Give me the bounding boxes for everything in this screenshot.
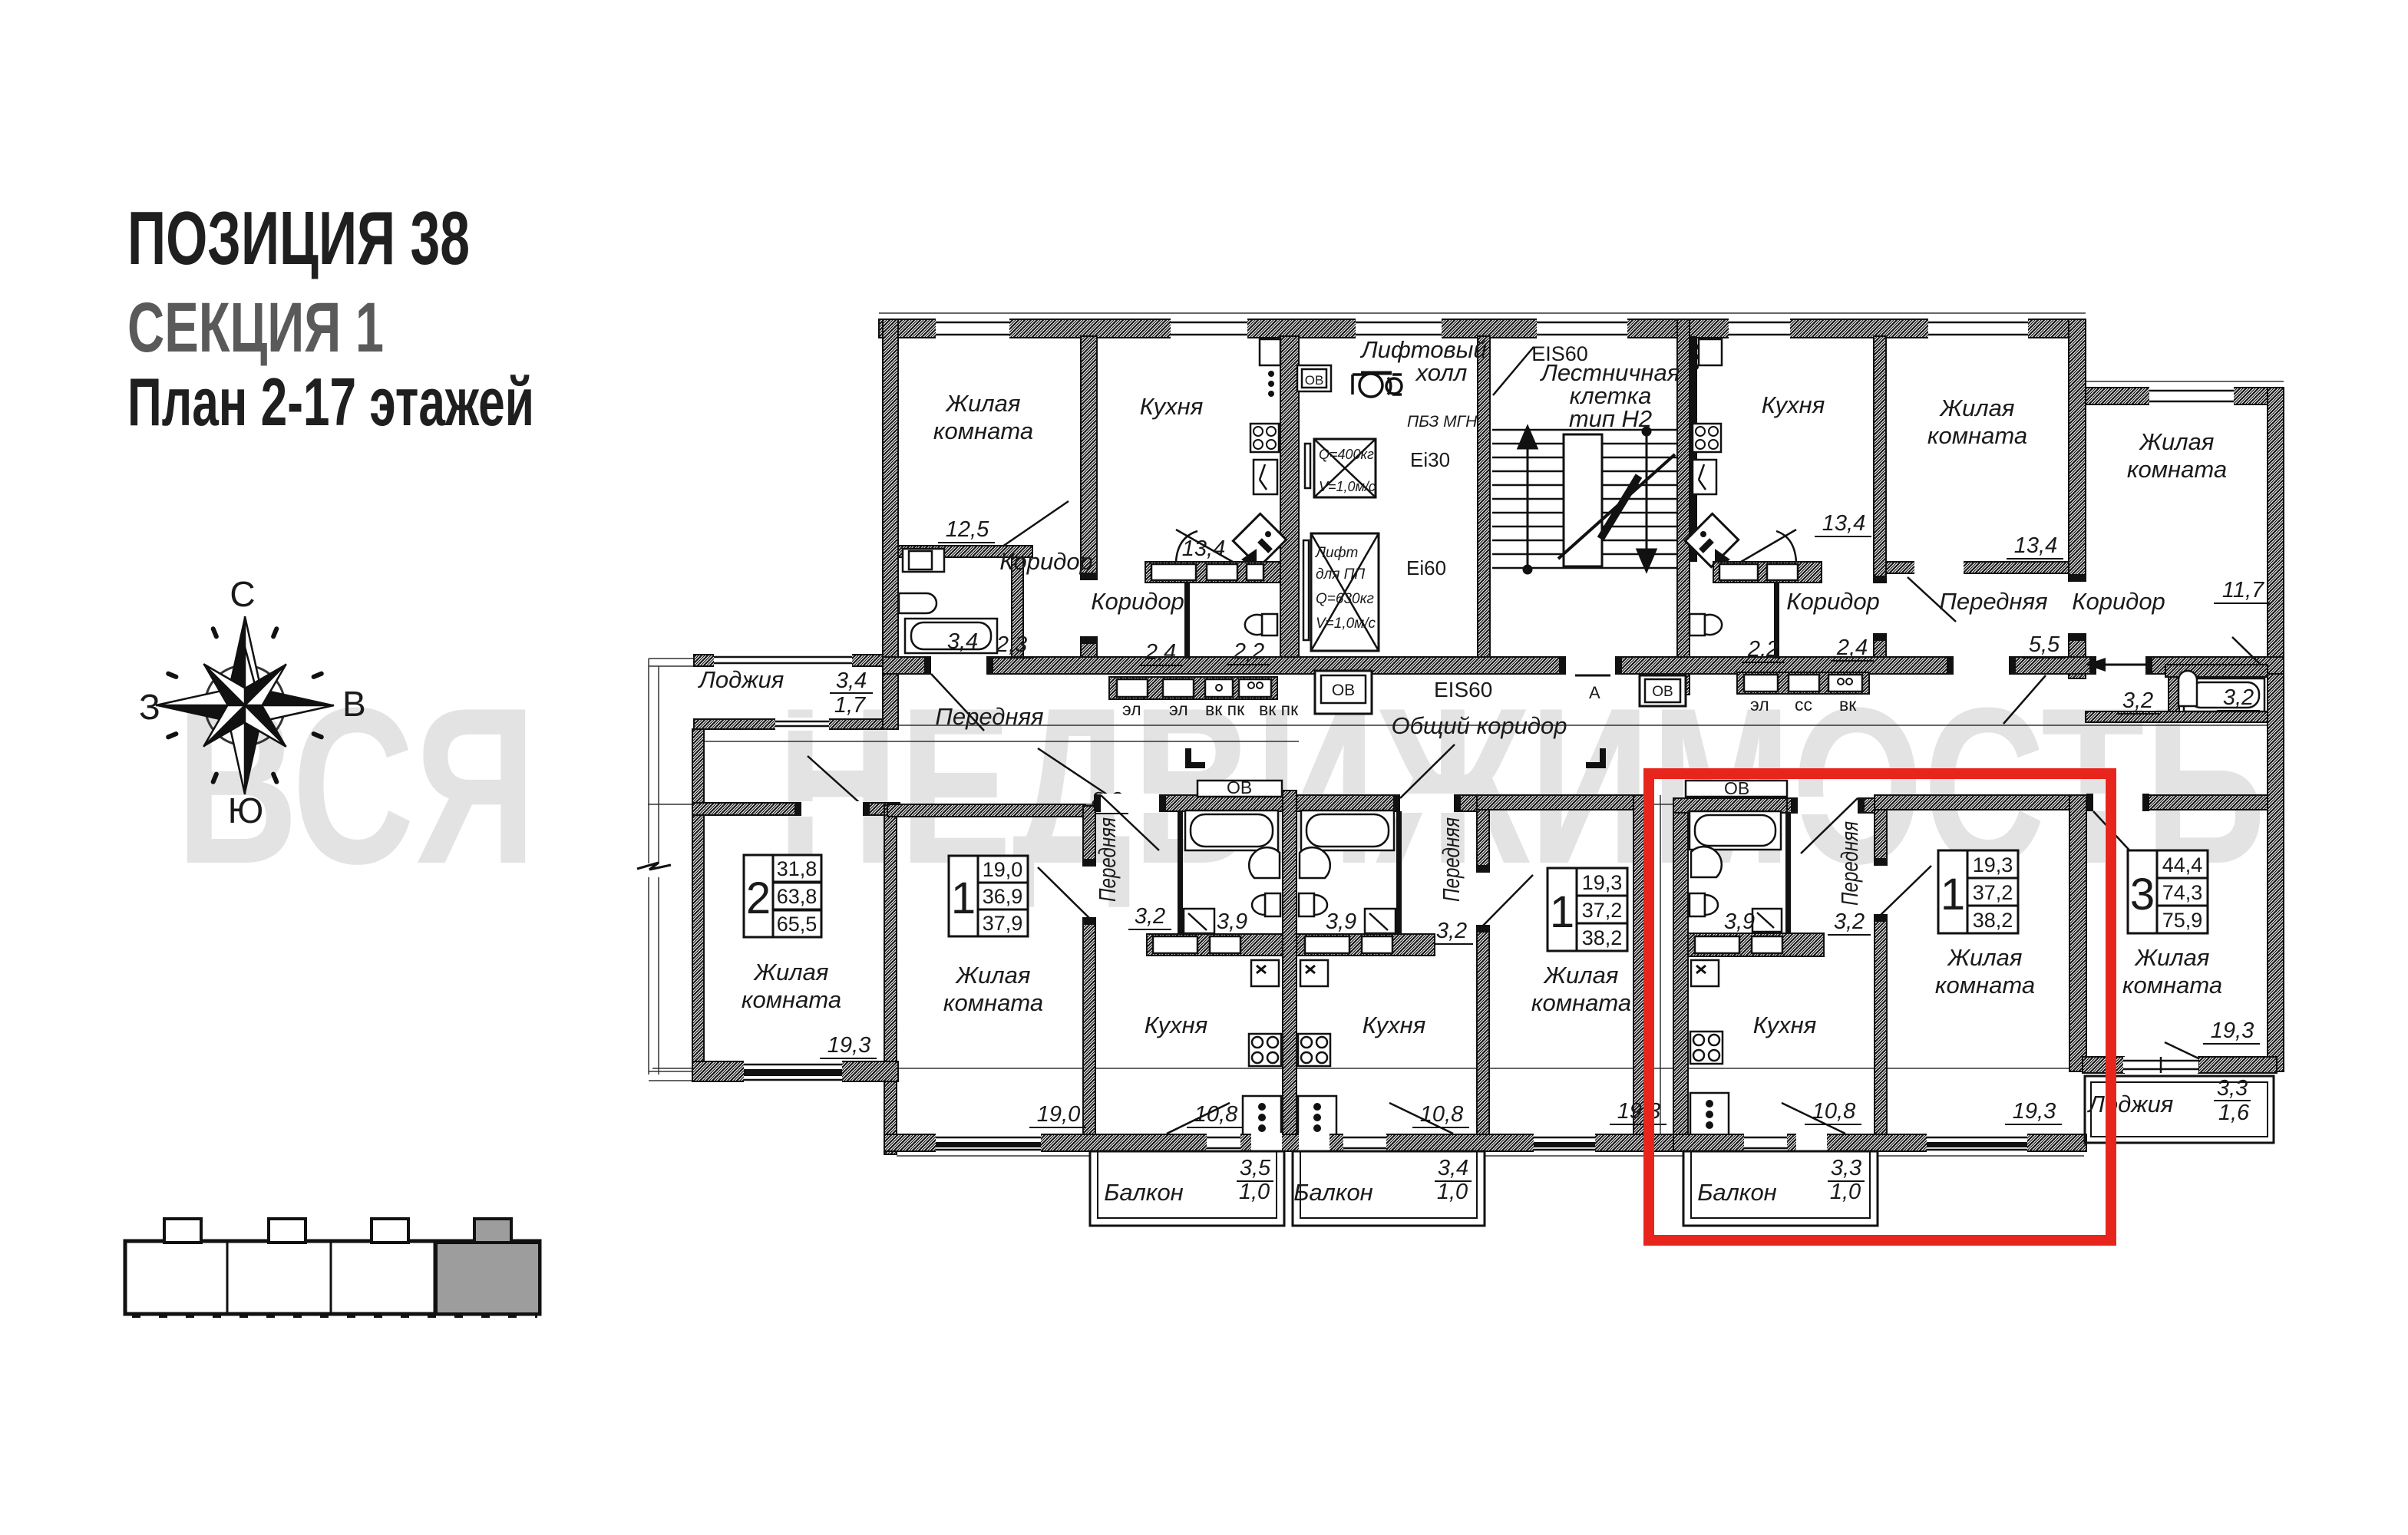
svg-text:Кухня: Кухня — [1140, 393, 1204, 420]
svg-text:Балкон: Балкон — [1104, 1179, 1184, 1206]
svg-text:3,4: 3,4 — [947, 629, 978, 654]
svg-text:тип Н2: тип Н2 — [1569, 405, 1652, 432]
svg-text:13,4: 13,4 — [1182, 536, 1225, 561]
svg-text:Кухня: Кухня — [1753, 1012, 1817, 1038]
svg-text:EIS60: EIS60 — [1434, 678, 1492, 701]
svg-text:Q=400кг: Q=400кг — [1319, 447, 1374, 462]
svg-text:1,0: 1,0 — [1437, 1180, 1468, 1204]
svg-text:Коридор: Коридор — [2072, 588, 2165, 615]
svg-text:эл: эл — [1169, 699, 1188, 719]
svg-text:Жилая: Жилая — [1947, 944, 2023, 971]
svg-text:Лоджия: Лоджия — [2087, 1091, 2174, 1117]
svg-text:Коридор: Коридор — [999, 548, 1093, 575]
svg-text:3,9: 3,9 — [1326, 909, 1356, 934]
svg-text:1,6: 1,6 — [2218, 1101, 2250, 1125]
svg-text:Жилая: Жилая — [1939, 394, 2015, 421]
svg-text:Жилая: Жилая — [753, 959, 829, 985]
svg-text:СЕКЦИЯ 1: СЕКЦИЯ 1 — [127, 289, 384, 367]
svg-text:ОВ: ОВ — [1305, 373, 1324, 388]
svg-text:холл: холл — [1415, 359, 1468, 386]
svg-text:Кухня: Кухня — [1363, 1012, 1426, 1038]
svg-text:В: В — [342, 684, 366, 724]
svg-text:19,3: 19,3 — [827, 1033, 870, 1058]
svg-text:А: А — [1589, 683, 1600, 702]
svg-text:3,2: 3,2 — [1135, 904, 1165, 929]
svg-text:комната: комната — [943, 989, 1043, 1016]
svg-text:2,4: 2,4 — [1836, 635, 1868, 660]
svg-text:V=1,0м/с: V=1,0м/с — [1319, 479, 1376, 494]
svg-text:1: 1 — [951, 873, 976, 923]
svg-text:ПБЗ МГН: ПБЗ МГН — [1407, 413, 1478, 431]
svg-text:Жилая: Жилая — [955, 962, 1031, 989]
svg-text:3,9: 3,9 — [1217, 909, 1247, 934]
svg-text:19,0: 19,0 — [983, 858, 1023, 881]
svg-text:комната: комната — [1531, 989, 1631, 1016]
svg-text:Передняя: Передняя — [1438, 817, 1465, 902]
svg-text:комната: комната — [742, 986, 841, 1013]
svg-text:комната: комната — [1927, 422, 2027, 449]
svg-text:сс: сс — [1795, 695, 1812, 715]
svg-text:Коридор: Коридор — [1091, 588, 1184, 615]
svg-text:ОВ: ОВ — [1227, 777, 1252, 797]
svg-text:75,9: 75,9 — [2162, 909, 2203, 932]
svg-text:Коридор: Коридор — [1786, 588, 1880, 615]
svg-text:11,7: 11,7 — [2222, 578, 2265, 602]
svg-text:V=1,0м/с: V=1,0м/с — [1316, 616, 1376, 632]
svg-text:Общий коридор: Общий коридор — [1391, 712, 1567, 739]
svg-text:19,3: 19,3 — [2013, 1099, 2056, 1124]
svg-text:31,8: 31,8 — [777, 857, 818, 880]
svg-text:5,5: 5,5 — [2029, 632, 2060, 657]
svg-text:1,0: 1,0 — [1239, 1180, 1270, 1204]
svg-text:12,5: 12,5 — [946, 517, 989, 542]
svg-text:3,9: 3,9 — [1724, 909, 1755, 934]
svg-text:10,8: 10,8 — [1194, 1102, 1237, 1127]
svg-text:1: 1 — [1550, 887, 1574, 937]
svg-text:3,3: 3,3 — [2217, 1076, 2248, 1101]
svg-text:Ю: Ю — [228, 791, 263, 830]
svg-text:ОВ: ОВ — [1332, 682, 1355, 699]
svg-text:2,3: 2,3 — [996, 632, 1027, 657]
svg-text:37,2: 37,2 — [1973, 881, 2013, 904]
svg-text:Жилая: Жилая — [2139, 428, 2215, 455]
svg-text:вк: вк — [1839, 695, 1857, 715]
svg-text:19,3: 19,3 — [2211, 1018, 2254, 1043]
svg-text:36,9: 36,9 — [983, 885, 1023, 908]
svg-text:С: С — [230, 574, 255, 614]
svg-text:37,2: 37,2 — [1582, 899, 1623, 922]
svg-text:Лоджия: Лоджия — [698, 666, 784, 693]
svg-text:3,4: 3,4 — [836, 668, 867, 693]
svg-text:44,4: 44,4 — [2162, 853, 2203, 876]
svg-text:Балкон: Балкон — [1697, 1179, 1777, 1206]
svg-text:3,4: 3,4 — [1438, 1156, 1468, 1180]
svg-text:комната: комната — [933, 418, 1033, 444]
svg-text:65,5: 65,5 — [777, 913, 818, 936]
svg-text:1,0: 1,0 — [1830, 1180, 1861, 1204]
svg-text:для ПП: для ПП — [1316, 566, 1365, 583]
svg-text:3,2: 3,2 — [1436, 919, 1467, 943]
svg-text:комната: комната — [2122, 972, 2222, 999]
svg-text:19,0: 19,0 — [1037, 1102, 1080, 1127]
svg-text:2: 2 — [746, 873, 771, 923]
svg-text:Кухня: Кухня — [1762, 391, 1825, 418]
svg-text:Q=630кг: Q=630кг — [1316, 591, 1374, 607]
svg-text:1: 1 — [1941, 870, 1965, 919]
svg-text:38,2: 38,2 — [1973, 909, 2013, 932]
svg-text:вк пк: вк пк — [1259, 699, 1299, 719]
svg-text:13,4: 13,4 — [2014, 533, 2057, 558]
svg-text:Ei60: Ei60 — [1406, 556, 1446, 579]
svg-text:ПОЗИЦИЯ 38: ПОЗИЦИЯ 38 — [127, 196, 470, 280]
svg-text:ОВ: ОВ — [1724, 778, 1749, 798]
svg-text:эл: эл — [1750, 695, 1769, 715]
svg-text:19,3: 19,3 — [1582, 871, 1623, 894]
svg-text:19,3: 19,3 — [1973, 853, 2013, 876]
svg-text:Передняя: Передняя — [1836, 821, 1863, 906]
svg-text:3,3: 3,3 — [1831, 1156, 1861, 1180]
svg-text:3,5: 3,5 — [1240, 1156, 1271, 1180]
svg-text:Передняя: Передняя — [935, 703, 1043, 730]
svg-text:13,4: 13,4 — [1822, 511, 1865, 536]
svg-text:63,8: 63,8 — [777, 885, 818, 908]
svg-text:Передняя: Передняя — [1094, 817, 1121, 902]
svg-text:Жилая: Жилая — [945, 390, 1021, 417]
svg-text:План 2-17 этажей: План 2-17 этажей — [127, 364, 534, 440]
svg-text:74,3: 74,3 — [2162, 881, 2203, 904]
svg-text:Передняя: Передняя — [1939, 588, 2047, 615]
svg-text:3: 3 — [2130, 870, 2155, 919]
svg-text:Ei30: Ei30 — [1410, 448, 1450, 471]
svg-text:Лифт: Лифт — [1314, 545, 1358, 561]
svg-text:ОВ: ОВ — [1652, 684, 1673, 700]
svg-text:3,2: 3,2 — [2122, 688, 2153, 713]
svg-text:комната: комната — [1935, 972, 2035, 999]
svg-text:Кухня: Кухня — [1145, 1012, 1208, 1038]
svg-text:3,2: 3,2 — [2223, 685, 2254, 710]
svg-text:2,2: 2,2 — [1747, 637, 1779, 662]
svg-text:вк пк: вк пк — [1205, 699, 1245, 719]
svg-text:Балкон: Балкон — [1293, 1179, 1373, 1206]
svg-text:37,9: 37,9 — [983, 912, 1023, 935]
svg-text:38,2: 38,2 — [1582, 926, 1623, 949]
svg-text:2,2: 2,2 — [1233, 639, 1264, 664]
svg-text:3,2: 3,2 — [1834, 909, 1865, 934]
svg-text:Жилая: Жилая — [1543, 962, 1619, 989]
svg-text:комната: комната — [2127, 456, 2227, 483]
svg-text:2,4: 2,4 — [1145, 640, 1176, 665]
svg-text:1,7: 1,7 — [834, 693, 867, 718]
svg-text:эл: эл — [1122, 699, 1141, 719]
svg-text:10,8: 10,8 — [1420, 1102, 1463, 1127]
svg-text:Жилая: Жилая — [2134, 944, 2210, 971]
svg-text:З: З — [139, 687, 160, 727]
